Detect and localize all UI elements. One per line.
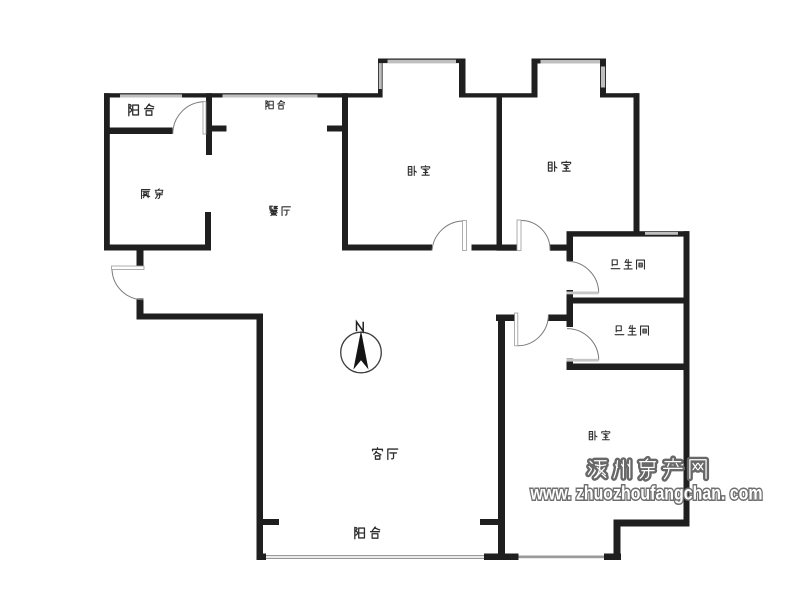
svg-text:www. zhuozhoufangchan. com: www. zhuozhoufangchan. com	[530, 483, 763, 505]
